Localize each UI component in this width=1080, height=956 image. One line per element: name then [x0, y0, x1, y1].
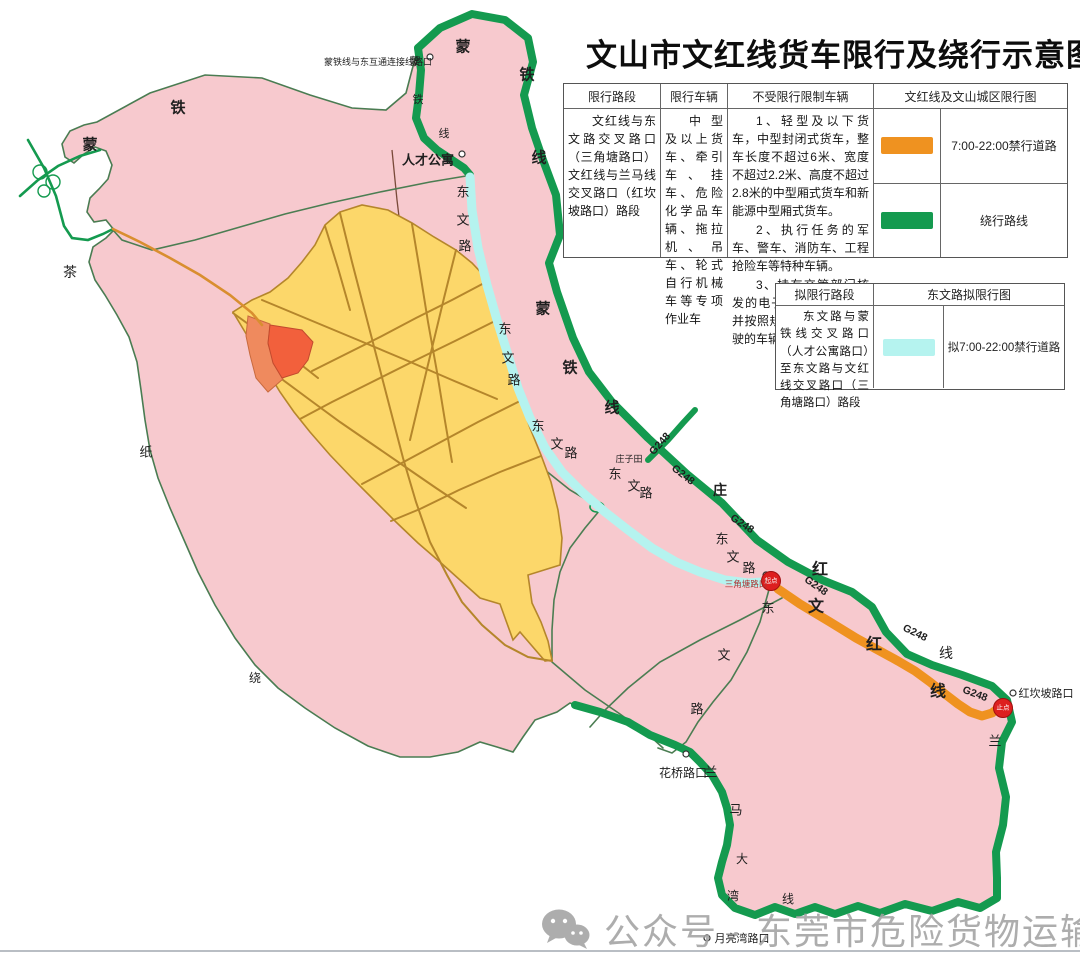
map-label: 大 [736, 852, 748, 866]
map-label: 蒙 [535, 300, 550, 318]
map-label: 绕 [249, 671, 261, 685]
exempt-vehicles-text: 1、轻型及以下货车，中型封闭式货车，整车长度不超过6米、宽度不超过2.2米、高度… [728, 109, 874, 257]
legend-row-restricted: 7:00-22:00禁行道路 [874, 109, 1067, 183]
map-label: 路 [458, 239, 471, 254]
planned-col-header-segment: 拟限行路段 [776, 284, 874, 306]
map-label: 蒙 [455, 38, 470, 56]
planned-road-swatch [883, 339, 935, 356]
endpoint-label: 止点 [997, 703, 1011, 712]
map-label: 文 [501, 351, 514, 366]
map-label: 路 [742, 561, 755, 576]
planned-segment-text: 东文路与蒙铁线交叉路口（人才公寓路口）至东文路与文红线交叉路口（三角塘路口）路段 [776, 306, 874, 388]
planned-road-legend-label: 拟7:00-22:00禁行道路 [944, 306, 1064, 388]
map-label: 红坎坡路口 [1019, 687, 1074, 700]
marker-月亮湾路口 [704, 935, 710, 941]
west-cross-road [20, 150, 100, 196]
map-label: 东 [608, 467, 621, 482]
map-label: 东 [761, 601, 774, 616]
map-label: 蒙 [82, 136, 97, 154]
map-label: 月亮湾路口 [715, 931, 770, 945]
segment-paragraph: 文红线与东文路交叉路口（三角塘路口）文红线与兰马线交叉路口（红坎坡路口）路段 [568, 112, 656, 220]
map-label: 路 [507, 373, 520, 388]
restricted-vehicles-text: 中型及以上货车、牵引车、挂车、危险化学品车辆、拖拉机、吊车、轮式自行机械车等专项… [661, 109, 728, 257]
map-label: 马 [729, 803, 742, 818]
map-label: 兰 [988, 734, 1001, 749]
bottom-border [0, 950, 1080, 952]
map-label: 线 [604, 399, 619, 417]
restriction-table: 限行路段 限行车辆 不受限行限制车辆 文红线及文山城区限行图 文红线与东文路交叉… [563, 83, 1068, 258]
detour-route-swatch [881, 212, 933, 229]
col-header-segment: 限行路段 [564, 84, 661, 109]
map-label: 路 [690, 702, 703, 717]
map-label: 线 [439, 126, 450, 140]
detour-route-legend-label: 绕行路线 [941, 184, 1067, 258]
map-label: 三角塘路口 [725, 579, 768, 589]
map-label: 线 [782, 892, 794, 906]
map-label: 线 [939, 645, 953, 661]
map-label: 铁 [413, 93, 424, 106]
col-header-exempt: 不受限行限制车辆 [728, 84, 874, 109]
page-title: 文山市文红线货车限行及绕行示意图 [586, 33, 1078, 79]
map-label: 路 [564, 446, 577, 461]
map-label: 东 [456, 185, 469, 200]
map-label: 蒙 [410, 55, 421, 68]
map-infographic: 起点止点 蒙铁线与东互通连接线路口人才公寓蒙铁线蒙铁线铁蒙茶纸绕蒙铁线G248G… [0, 0, 1080, 956]
map-label: 路 [639, 486, 652, 501]
restricted-segment-text: 文红线与东文路交叉路口（三角塘路口）文红线与兰马线交叉路口（红坎坡路口）路段 [564, 109, 661, 257]
map-label: 线 [531, 149, 546, 167]
map-label: 红 [866, 635, 882, 654]
map-label: 铁 [519, 66, 534, 84]
map-label: 铁 [562, 359, 577, 377]
legend-row-planned: 拟7:00-22:00禁行道路 [874, 306, 1064, 388]
exempt-item-1: 1、轻型及以下货车，中型封闭式货车，整车长度不超过6米、宽度不超过2.2米、高度… [732, 112, 869, 220]
planned-col-header-legend: 东文路拟限行图 [874, 284, 1064, 306]
map-label: 庄 [713, 482, 727, 498]
map-label: 文 [726, 550, 739, 565]
map-label: 文 [717, 648, 730, 663]
map-label: 东 [715, 532, 728, 547]
map-label: 文 [456, 213, 469, 228]
legend-column: 7:00-22:00禁行道路 绕行路线 [874, 109, 1067, 257]
map-label: 铁 [170, 99, 185, 117]
planned-segment-paragraph: 东文路与蒙铁线交叉路口（人才公寓路口）至东文路与文红线交叉路口（三角塘路口）路段 [780, 309, 869, 413]
map-label: 庄子田 [615, 453, 642, 464]
map-label: 纸 [139, 445, 152, 460]
planned-legend-column: 拟7:00-22:00禁行道路 [874, 306, 1064, 388]
map-label: 文 [808, 597, 825, 616]
map-label: G248 [901, 622, 929, 644]
marker-红坎坡路口 [1010, 690, 1016, 696]
col-header-legend: 文红线及文山城区限行图 [874, 84, 1067, 109]
col-header-vehicles: 限行车辆 [661, 84, 728, 109]
map-label: 文 [550, 437, 563, 452]
map-label: 湾 [727, 888, 739, 903]
map-label: 东 [531, 419, 544, 434]
marker-花桥路口 [683, 751, 689, 757]
restricted-road-swatch [881, 137, 933, 154]
vehicles-paragraph: 中型及以上货车、牵引车、挂车、危险化学品车辆、拖拉机、吊车、轮式自行机械车等专项… [665, 112, 723, 328]
map-label: 线 [930, 682, 946, 701]
exempt-item-2: 2、执行任务的军车、警车、消防车、工程抢险车等特种车辆。 [732, 221, 869, 275]
map-label: 人才公寓 [402, 153, 454, 168]
restricted-road-legend-label: 7:00-22:00禁行道路 [941, 109, 1067, 183]
map-label: 茶 [63, 264, 77, 280]
planned-restriction-table: 拟限行路段 东文路拟限行图 东文路与蒙铁线交叉路口（人才公寓路口）至东文路与文红… [775, 283, 1065, 390]
marker-人才公寓 [459, 151, 465, 157]
legend-row-detour: 绕行路线 [874, 183, 1067, 258]
map-label: 花桥路口 [659, 765, 707, 780]
map-label: 红 [812, 560, 828, 579]
map-label: 东 [498, 322, 511, 337]
